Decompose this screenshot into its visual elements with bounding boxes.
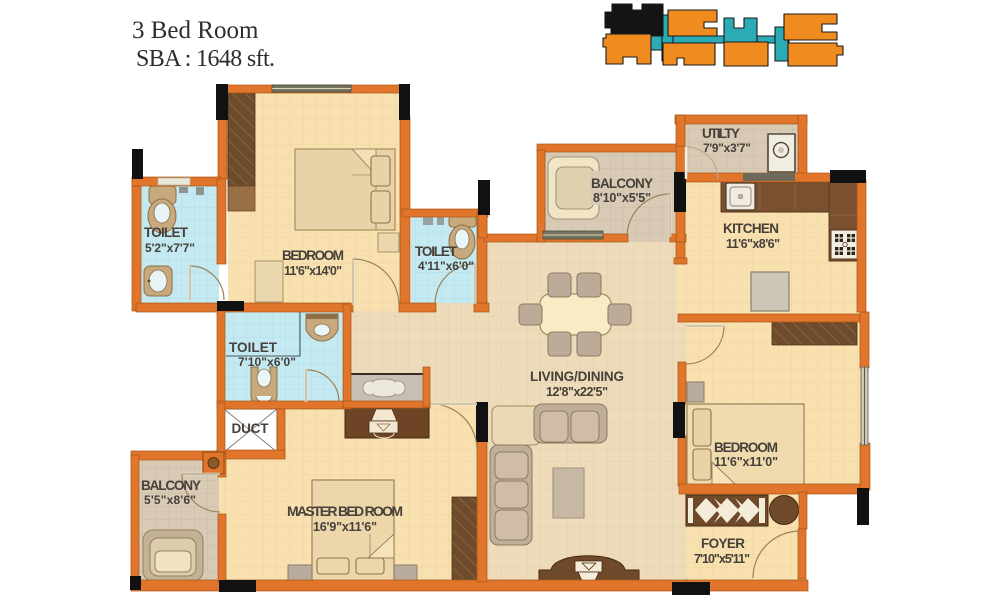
svg-text:SBA : 1648 sft.: SBA : 1648 sft. bbox=[136, 46, 275, 72]
svg-text:7'9"x3'7": 7'9"x3'7" bbox=[703, 141, 751, 155]
svg-text:MASTER BED ROOM: MASTER BED ROOM bbox=[287, 503, 403, 519]
svg-text:11'6"x14'0": 11'6"x14'0" bbox=[284, 264, 342, 278]
svg-text:5'2"x7'7": 5'2"x7'7" bbox=[145, 241, 195, 255]
svg-text:LIVING/DINING: LIVING/DINING bbox=[530, 369, 624, 384]
svg-text:12'8"x22'5": 12'8"x22'5" bbox=[546, 385, 608, 399]
svg-text:BALCONY: BALCONY bbox=[141, 478, 201, 493]
svg-text:BEDROOM: BEDROOM bbox=[714, 440, 778, 455]
svg-text:5'5"x8'6": 5'5"x8'6" bbox=[144, 493, 196, 507]
svg-text:3 Bed Room: 3 Bed Room bbox=[132, 17, 259, 44]
svg-text:7'10"x5'11": 7'10"x5'11" bbox=[694, 552, 750, 566]
svg-text:DUCT: DUCT bbox=[232, 421, 270, 436]
svg-text:KITCHEN: KITCHEN bbox=[723, 221, 779, 236]
svg-text:TOILET: TOILET bbox=[415, 244, 458, 259]
svg-text:BEDROOM: BEDROOM bbox=[282, 248, 344, 263]
svg-text:TOILET: TOILET bbox=[229, 340, 278, 355]
svg-text:11'6"x8'6": 11'6"x8'6" bbox=[726, 237, 780, 251]
svg-text:16'9"x11'6": 16'9"x11'6" bbox=[313, 520, 377, 534]
svg-text:8'10"x5'5": 8'10"x5'5" bbox=[593, 191, 651, 205]
svg-text:4'11"x6'0": 4'11"x6'0" bbox=[418, 259, 474, 273]
svg-text:UTILTY: UTILTY bbox=[702, 126, 740, 141]
svg-text:TOILET: TOILET bbox=[144, 225, 189, 240]
svg-text:11'6"x11'0": 11'6"x11'0" bbox=[714, 455, 778, 469]
svg-text:FOYER: FOYER bbox=[701, 536, 745, 551]
svg-text:BALCONY: BALCONY bbox=[591, 176, 653, 191]
svg-text:7'10"x6'0": 7'10"x6'0" bbox=[238, 355, 296, 369]
